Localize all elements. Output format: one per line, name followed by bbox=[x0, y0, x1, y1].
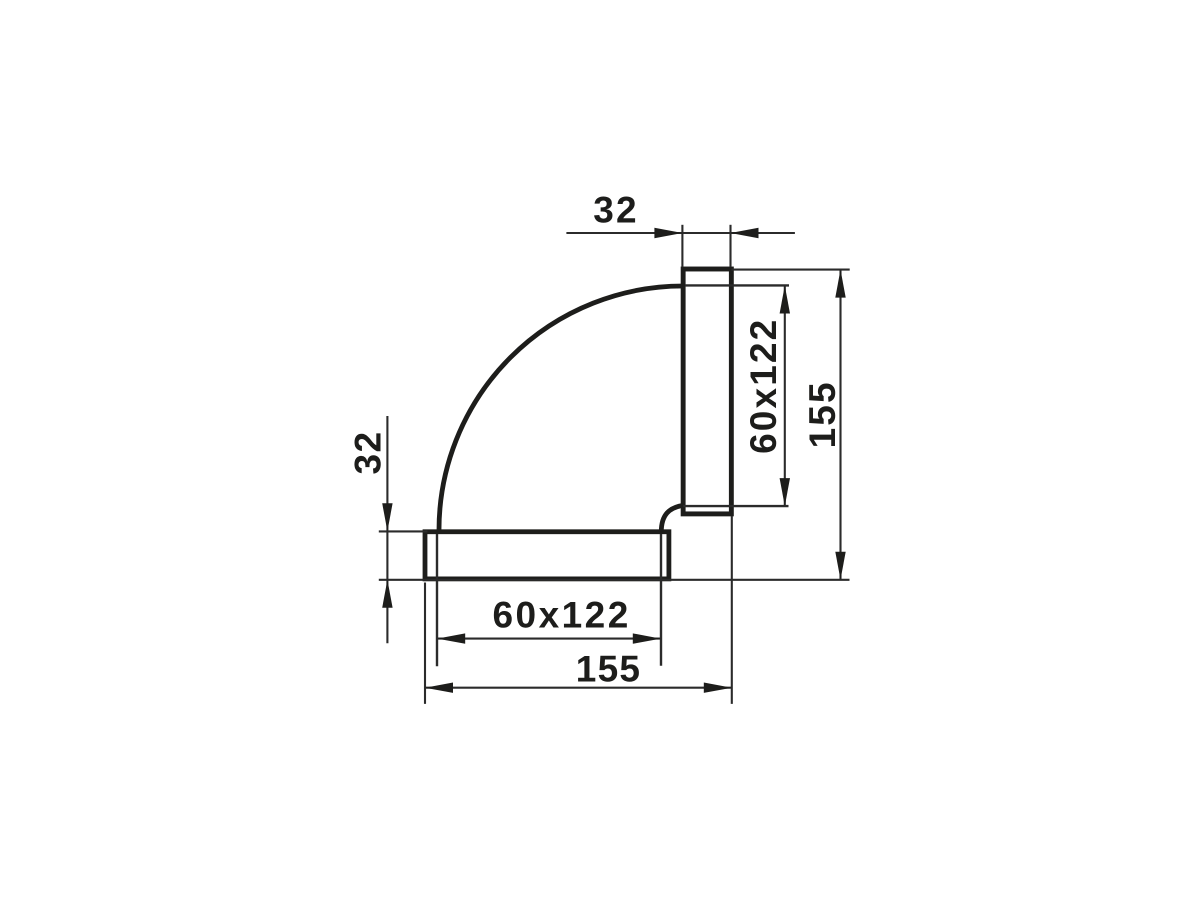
svg-text:155: 155 bbox=[576, 649, 640, 690]
svg-text:155: 155 bbox=[802, 382, 843, 448]
svg-text:32: 32 bbox=[348, 432, 389, 475]
